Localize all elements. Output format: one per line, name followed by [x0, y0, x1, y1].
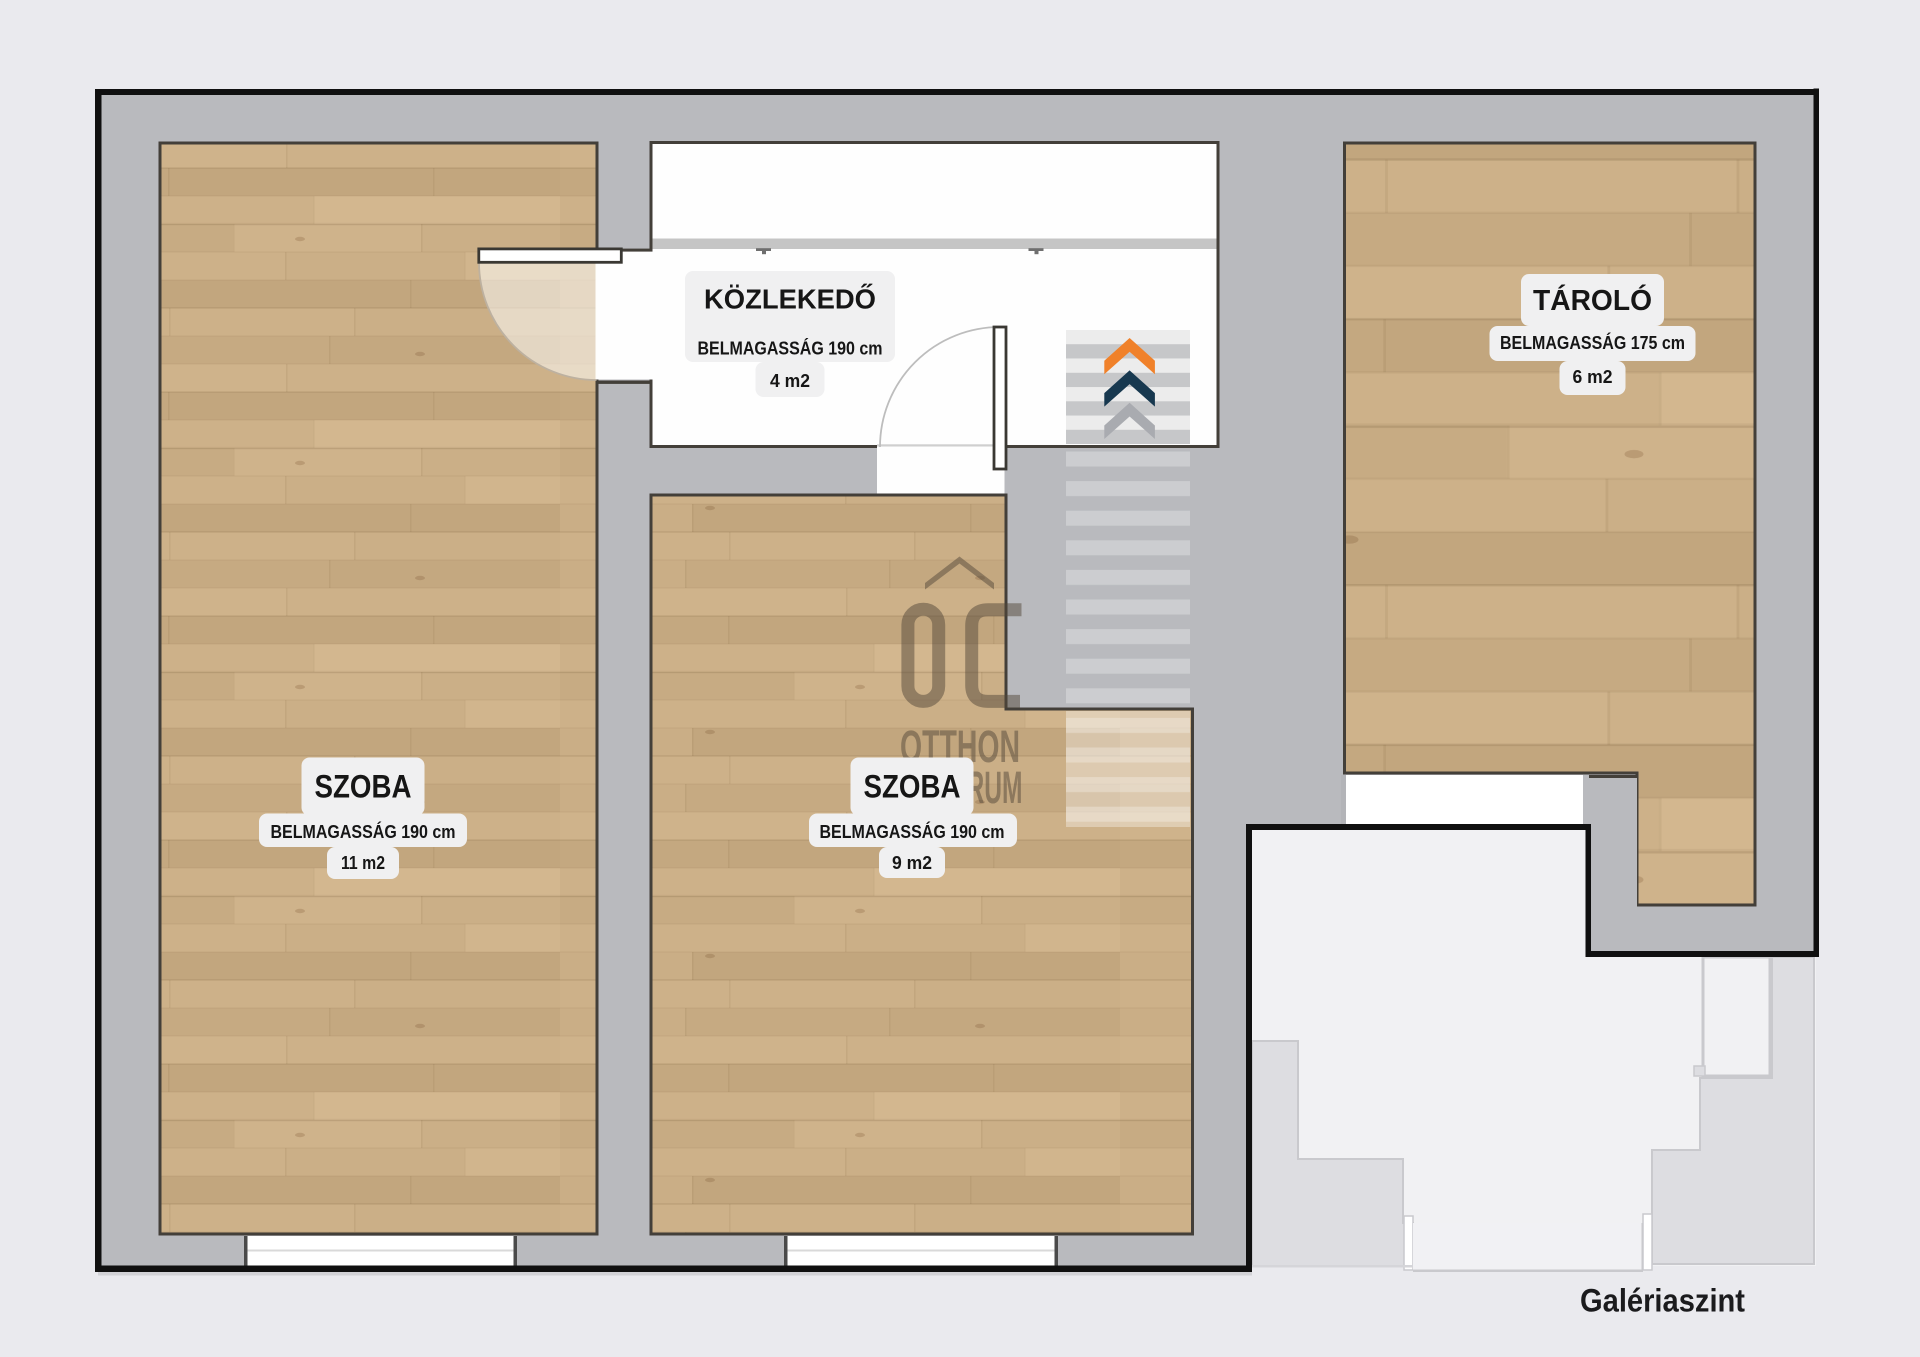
- svg-text:BELMAGASSÁG 190 cm: BELMAGASSÁG 190 cm: [271, 821, 456, 842]
- svg-text:KÖZLEKEDŐ: KÖZLEKEDŐ: [704, 284, 876, 315]
- svg-text:SZOBA: SZOBA: [864, 769, 961, 805]
- svg-text:TÁROLÓ: TÁROLÓ: [1533, 283, 1652, 317]
- svg-text:BELMAGASSÁG 190 cm: BELMAGASSÁG 190 cm: [698, 338, 883, 359]
- svg-text:9 m2: 9 m2: [892, 853, 932, 873]
- svg-text:SZOBA: SZOBA: [315, 769, 412, 805]
- svg-text:6 m2: 6 m2: [1573, 367, 1613, 387]
- svg-text:Galériaszint: Galériaszint: [1580, 1283, 1745, 1319]
- svg-text:4 m2: 4 m2: [770, 371, 810, 391]
- svg-text:11 m2: 11 m2: [341, 853, 385, 873]
- svg-text:BELMAGASSÁG 190 cm: BELMAGASSÁG 190 cm: [820, 821, 1005, 842]
- svg-text:BELMAGASSÁG 175 cm: BELMAGASSÁG 175 cm: [1500, 332, 1685, 353]
